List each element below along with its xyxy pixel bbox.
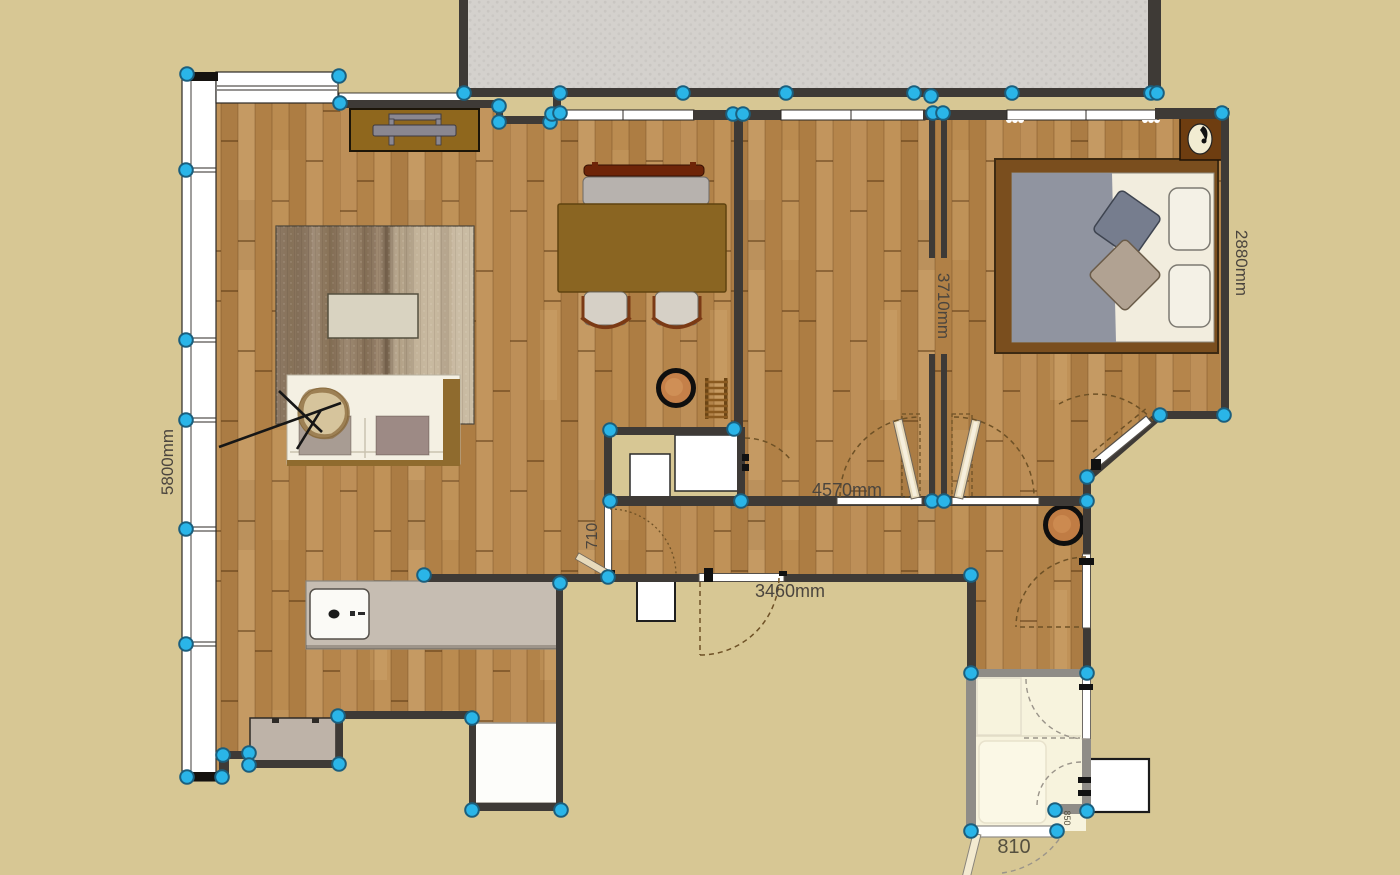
svg-text:4570mm: 4570mm: [812, 480, 882, 500]
svg-text:710: 710: [584, 523, 601, 550]
svg-text:850: 850: [1062, 810, 1072, 825]
svg-text:2880mm: 2880mm: [1232, 230, 1251, 296]
svg-text:810: 810: [997, 836, 1030, 858]
svg-text:3710mm: 3710mm: [934, 273, 953, 339]
svg-text:3460mm: 3460mm: [755, 581, 825, 601]
svg-text:5800mm: 5800mm: [158, 429, 177, 495]
